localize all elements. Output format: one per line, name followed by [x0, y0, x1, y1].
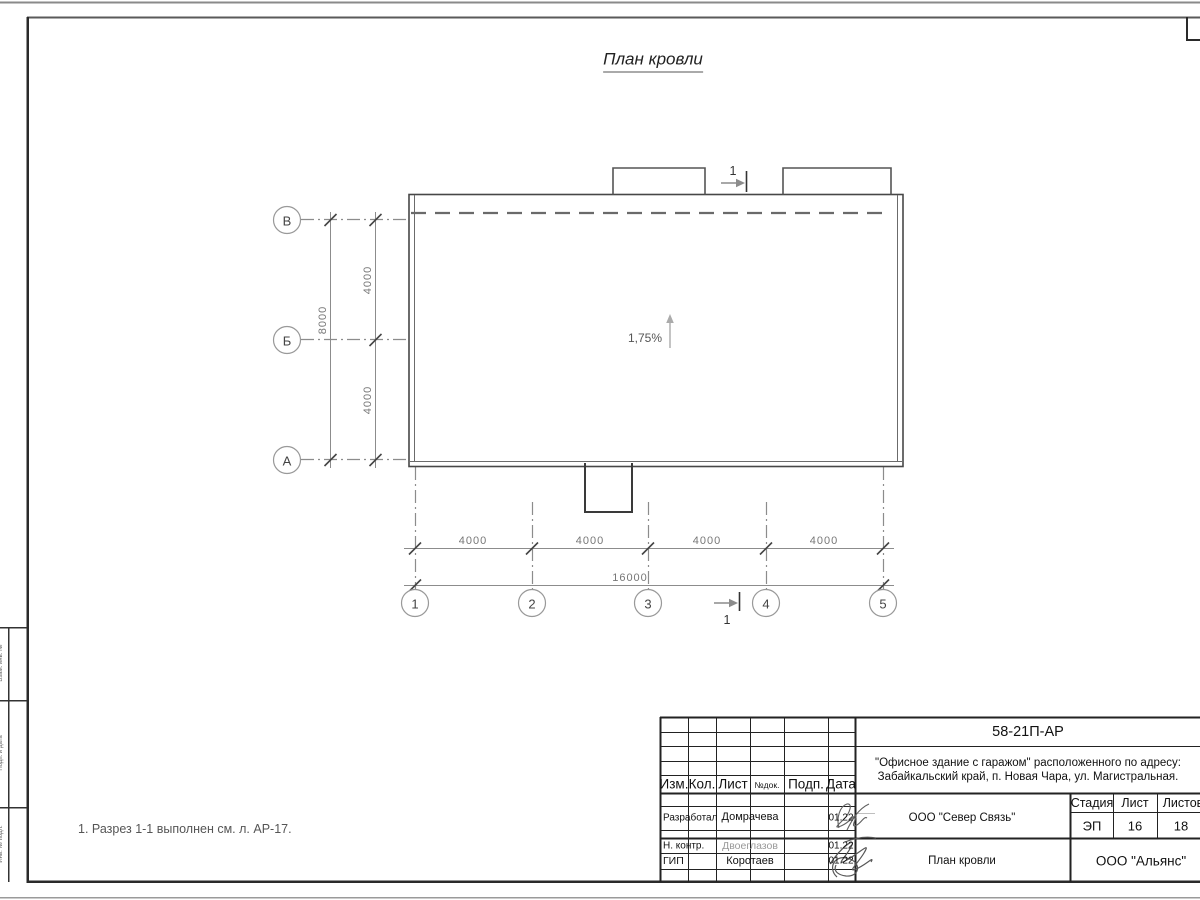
tb-row1-role: Разработал	[663, 813, 717, 824]
tb-doc-number: 58-21П-АР	[992, 724, 1064, 740]
dim-label-left-bay2: 4000	[362, 386, 374, 414]
frame-corner-cell	[1187, 17, 1200, 40]
side-stamp-label-3: Инв. № подл.	[0, 813, 10, 875]
axis-label-a: А	[283, 454, 292, 469]
drawing-title: План кровли	[603, 50, 703, 73]
tb-col-ndok: №док.	[755, 780, 780, 790]
tb-col-izm: Изм.	[660, 777, 689, 792]
tb-col-kol: Кол.	[689, 777, 716, 792]
dim-label-bay4: 4000	[810, 535, 838, 547]
slope-label: 1,75%	[628, 331, 662, 345]
tb-total-label: Листов	[1163, 796, 1200, 810]
tb-sheet-value: 16	[1128, 819, 1142, 834]
dim-label-total: 16000	[612, 572, 648, 584]
parapet-left	[613, 168, 705, 195]
tb-total-value: 18	[1174, 819, 1188, 834]
tb-company: ООО "Альянс"	[1096, 854, 1186, 869]
tb-stage-label: Стадия	[1071, 796, 1114, 810]
tb-col-podp: Подп.	[788, 777, 824, 792]
tb-row1-name: Домрачева	[722, 811, 779, 823]
tb-row1-date: 01.22	[828, 813, 853, 824]
side-stamp-label-2: Подп. и дата	[0, 722, 10, 784]
axis-label-1: 1	[411, 597, 418, 612]
axis-label-5: 5	[879, 597, 886, 612]
dim-label-bay1: 4000	[459, 535, 487, 547]
section-label-top: 1	[730, 164, 737, 178]
tb-row3-date: 01.22	[828, 856, 853, 867]
tb-row2-name: Двоеглазов	[722, 840, 778, 852]
tb-col-list: Лист	[718, 777, 747, 792]
entrance-canopy	[585, 463, 632, 512]
axis-label-b: Б	[283, 334, 292, 349]
tb-sheet-label: Лист	[1121, 796, 1148, 810]
dim-label-bay3: 4000	[693, 535, 721, 547]
tb-row2-date: 01.22	[828, 841, 853, 852]
sheet-note: 1. Разрез 1-1 выполнен см. л. АР-17.	[78, 822, 292, 836]
tb-row2-role: Н. контр.	[663, 841, 704, 852]
tb-row3-name: Коротаев	[726, 855, 774, 867]
section-mark-bottom	[714, 592, 740, 611]
drawing-sheet: План кровли 1,75% 1. Разрез 1-1 выполнен…	[0, 0, 1200, 900]
tb-sheet-name: План кровли	[928, 855, 996, 867]
tb-org: ООО "Север Связь"	[909, 812, 1016, 824]
dim-label-left-bay1: 4000	[362, 266, 374, 294]
tb-project-line1: "Офисное здание с гаражом" расположенног…	[875, 757, 1181, 769]
axis-label-4: 4	[762, 597, 769, 612]
dim-label-bay2: 4000	[576, 535, 604, 547]
tb-project-line2: Забайкальский край, п. Новая Чара, ул. М…	[878, 771, 1179, 783]
tb-col-data: Дата	[826, 777, 856, 792]
axis-label-v: В	[283, 214, 292, 229]
axis-label-2: 2	[528, 597, 535, 612]
parapet-right	[783, 168, 891, 195]
tb-stage-value: ЭП	[1083, 819, 1102, 834]
tb-row3-role: ГИП	[663, 855, 684, 867]
section-label-bottom: 1	[724, 613, 731, 627]
dim-label-left-total: 8000	[317, 306, 329, 334]
axis-label-3: 3	[644, 597, 651, 612]
side-stamp-label-1: Взам. инв. №	[0, 632, 10, 694]
